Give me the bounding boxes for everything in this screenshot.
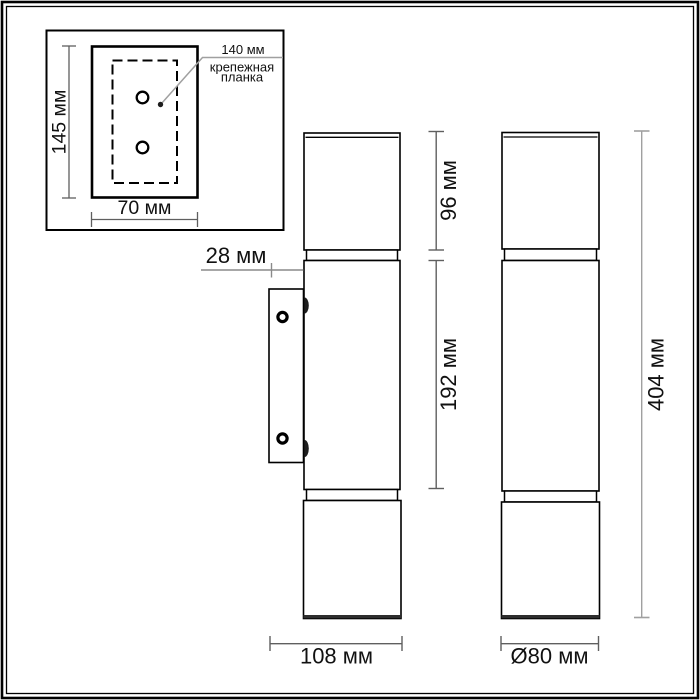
overall-height-dimension: 404 мм <box>634 131 669 618</box>
side-middle-body <box>304 261 400 490</box>
callout-name-line2: планка <box>221 70 264 85</box>
side-bottom-cylinder <box>304 501 402 619</box>
middle-section-dimension: 192 мм <box>429 261 462 489</box>
mounting-plate-inset: 140 мм крепежная планка 145 мм 70 мм <box>47 31 284 231</box>
diameter-label: Ø80 мм <box>511 644 589 669</box>
lamp-side-view <box>269 133 401 619</box>
plate-width-label: 70 мм <box>118 197 172 219</box>
front-upper-ring <box>505 249 597 261</box>
front-top-cylinder <box>502 133 599 250</box>
overall-depth-dimension: 108 мм <box>270 636 402 669</box>
front-middle-body <box>502 261 599 492</box>
middle-section-label: 192 мм <box>436 338 461 411</box>
callout-anchor-dot <box>158 102 163 107</box>
plate-screw-hole-top <box>137 92 149 104</box>
bracket-screw-top <box>278 312 287 321</box>
side-lower-ring <box>307 490 398 501</box>
wall-offset-dimension: 28 мм <box>201 243 304 278</box>
callout-value-label: 140 мм <box>221 42 264 57</box>
plate-height-dimension: 145 мм <box>49 46 77 198</box>
bracket-screw-bottom <box>278 434 287 443</box>
wall-offset-label: 28 мм <box>206 243 267 268</box>
lamp-dimension-drawing: 140 мм крепежная планка 145 мм 70 мм <box>0 0 700 700</box>
side-top-cylinder <box>304 133 400 250</box>
top-section-dimension: 96 мм <box>429 132 462 251</box>
lamp-front-view <box>502 133 600 619</box>
overall-height-label: 404 мм <box>644 338 669 411</box>
plate-screw-hole-bottom <box>137 142 149 154</box>
diameter-dimension: Ø80 мм <box>501 636 599 669</box>
plate-height-label: 145 мм <box>49 90 71 155</box>
front-lower-ring <box>505 491 597 502</box>
overall-depth-label: 108 мм <box>300 644 373 669</box>
front-bottom-cylinder <box>502 502 600 619</box>
side-upper-ring <box>307 250 398 261</box>
drawing-canvas: 140 мм крепежная планка 145 мм 70 мм <box>0 0 700 700</box>
mounting-plate-outline <box>92 47 198 198</box>
top-section-label: 96 мм <box>436 160 461 221</box>
plate-width-dimension: 70 мм <box>92 197 198 227</box>
